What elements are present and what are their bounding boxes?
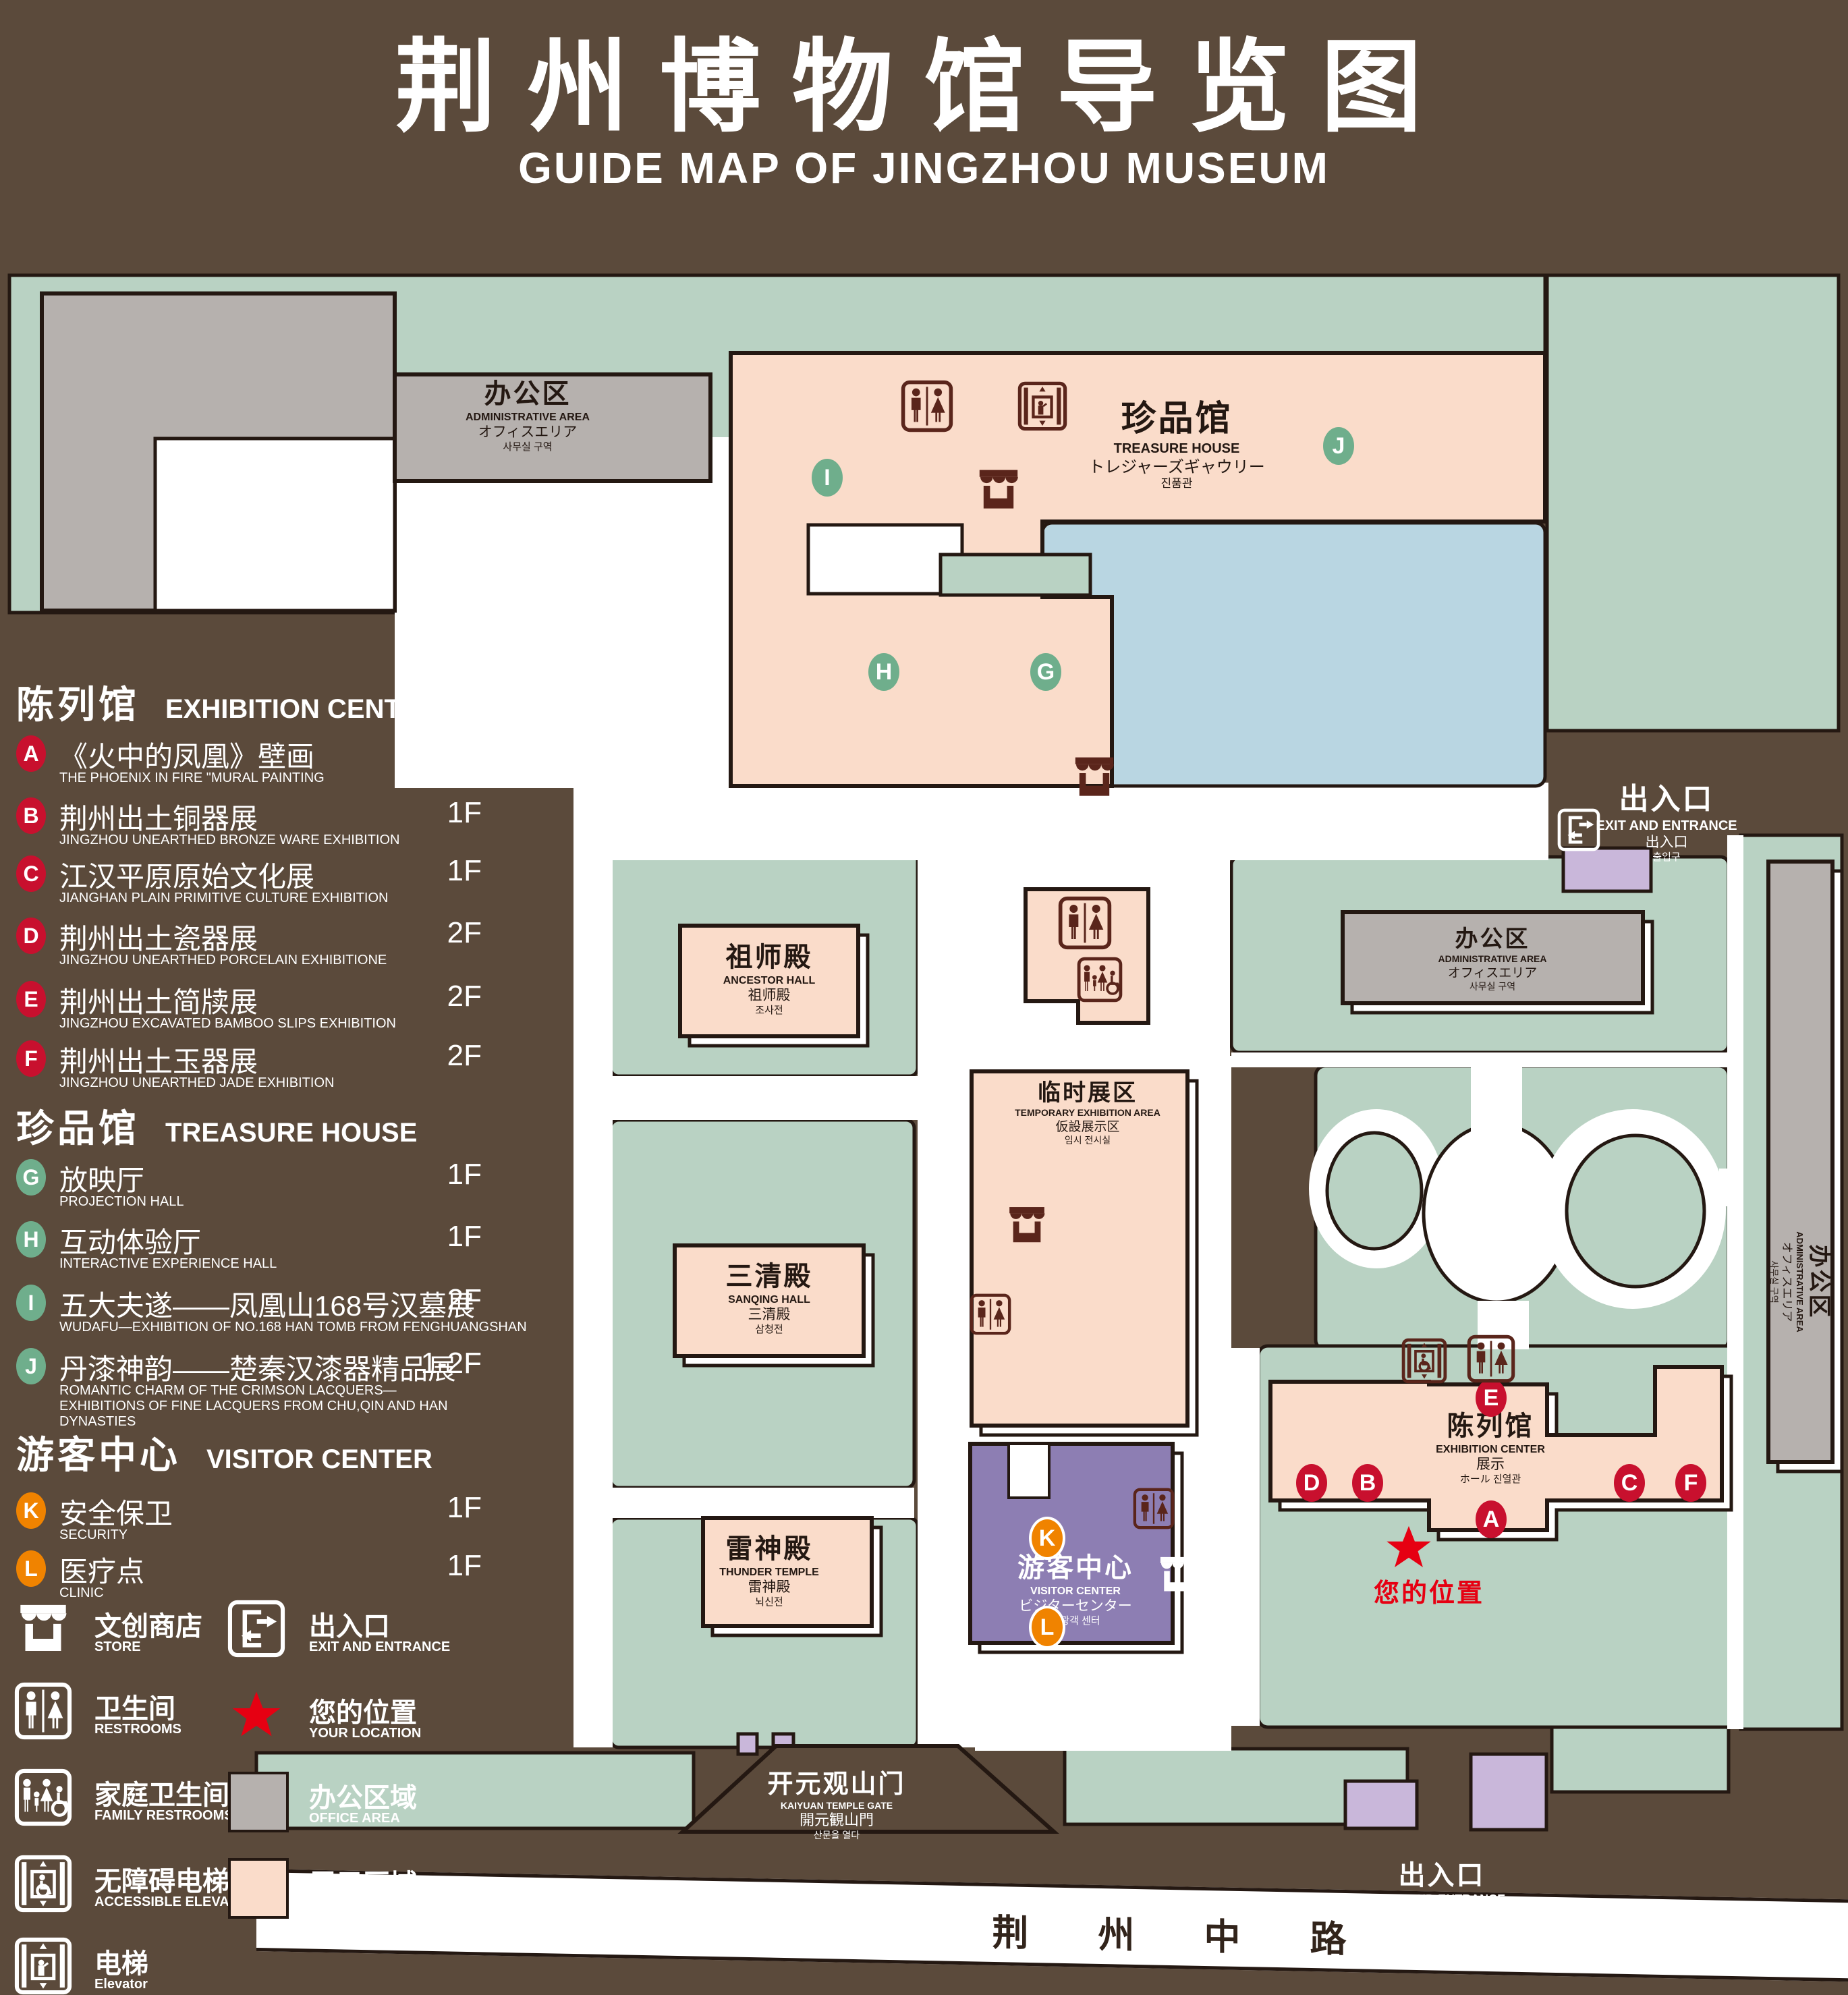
path-right-column	[1727, 835, 1743, 1729]
store-icon	[1156, 1553, 1199, 1596]
temporary-exhibition-label: 临时展区TEMPORARY EXHIBITION AREA 仮設展示区임시 전시…	[1015, 1079, 1160, 1146]
restroom-icon	[901, 380, 953, 432]
exit-icon	[227, 1600, 285, 1658]
store-icon	[974, 466, 1023, 514]
visitor-center-notch	[1009, 1444, 1049, 1498]
legend-item-H: H 互动体验厅 INTERACTIVE EXPERIENCE HALL 1F	[16, 1220, 486, 1283]
restroom-icon	[1133, 1488, 1175, 1529]
ancestor-hall-label: 祖师殿ANCESTOR HALL 祖师殿조사전	[723, 941, 816, 1017]
map-marker-C: C	[1614, 1464, 1645, 1502]
legend-section-treasure-house: 珍品馆TREASURE HOUSE	[16, 1098, 417, 1153]
map-marker-L: L	[1029, 1606, 1065, 1649]
pond-island	[941, 555, 1090, 595]
exit-bottom-label: 出入口EXIT AND ENTRANCE 出入口출입구	[1378, 1859, 1505, 1937]
map-marker-I: I	[812, 459, 843, 497]
path-center-vertical	[918, 840, 975, 1747]
elevator-icon	[1017, 381, 1067, 431]
legend-item-F: F 荆州出土玉器展 JINGZHOU UNEARTHED JADE EXHIBI…	[16, 1039, 486, 1102]
map-marker-A: A	[1476, 1500, 1507, 1538]
garden-green-right	[1567, 1135, 1704, 1287]
garden-path-top	[1471, 1066, 1522, 1160]
lawn-top-right	[1547, 275, 1839, 731]
admin-west-courtyard	[155, 439, 395, 611]
garden-green-left	[1327, 1133, 1422, 1249]
legend-item-K: K 安全保卫 SECURITY 1F	[16, 1491, 486, 1554]
road-label: 荆 州 中 路	[982, 1903, 1387, 1964]
map-marker-F: F	[1675, 1464, 1706, 1502]
restroom-icon	[14, 1682, 72, 1740]
exit-top-label: 出入口EXIT AND ENTRANCE 出入口출입구	[1596, 781, 1737, 864]
gate-post-left	[738, 1734, 757, 1754]
admin-mid-label: 办公区ADMINISTRATIVE AREA オフィスエリア사무실 구역	[1438, 926, 1547, 992]
map-marker-G: G	[1030, 653, 1061, 691]
path-mid-horizontal	[573, 783, 1548, 860]
legend-item-G: G 放映厅 PROJECTION HALL 1F	[16, 1158, 486, 1221]
legend-section-visitor-center: 游客中心VISITOR CENTER	[16, 1425, 432, 1480]
restroom-icon	[1058, 896, 1112, 950]
elevator-icon	[14, 1937, 72, 1995]
legend-item-B: B 荆州出土铜器展 JINGZHOU UNEARTHED BRONZE WARE…	[16, 796, 486, 860]
admin-west-label: 办公区ADMINISTRATIVE AREA オフィスエリア사무실 구역	[466, 378, 590, 453]
legend-item-A: A 《火中的凤凰》壁画 THE PHOENIX IN FIRE "MURAL P…	[16, 734, 486, 797]
map-marker-D: D	[1296, 1464, 1327, 1502]
map-marker-E: E	[1476, 1379, 1507, 1417]
path-midrow-gap	[1231, 1052, 1729, 1067]
restroom-icon	[970, 1293, 1011, 1335]
store-icon	[14, 1600, 72, 1658]
family-restroom-icon	[14, 1768, 72, 1826]
map-marker-J: J	[1323, 427, 1354, 465]
path-pads-gap2	[611, 1488, 914, 1518]
path-pads-gap1	[611, 1076, 918, 1120]
admin-east-bar-label: 办公区ADMINISTRATIVE AREA オフィスエリア사무실 구역	[1768, 1231, 1832, 1332]
accessible-elevator-icon	[1401, 1338, 1447, 1384]
map-marker-B: B	[1352, 1464, 1383, 1502]
family-restroom-icon	[1077, 957, 1123, 1003]
display-area-swatch	[228, 1858, 289, 1919]
legend-item-I: I 五大夫遂——凤凰山168号汉墓展 WUDAFU—EXHIBITION OF …	[16, 1283, 486, 1347]
pond	[1042, 523, 1545, 786]
exhibition-center-label: 陈列馆EXHIBITION CENTER 展示ホール 진열관	[1436, 1410, 1545, 1486]
treasure-house-label: 珍品馆TREASURE HOUSE トレジャーズギャウリー진품관	[1088, 398, 1265, 491]
restroom-icon	[1467, 1334, 1515, 1383]
legend-item-C: C 江汉平原原始文化展 JIANGHAN PLAIN PRIMITIVE CUL…	[16, 854, 486, 918]
booth-bottom-exit-a	[1345, 1781, 1417, 1828]
legend-section-exhibition-center: 陈列馆EXHIBITION CENTER	[16, 675, 438, 729]
path-west-vertical	[573, 783, 613, 1747]
kaiyuan-gate-label: 开元观山门KAIYUAN TEMPLE GATE 開元観山門산문을 열다	[767, 1769, 905, 1841]
thunder-temple-label: 雷神殿THUNDER TEMPLE 雷神殿뇌신전	[719, 1533, 819, 1608]
guide-map-page: { "title": {"zh": "荆州博物馆导览图", "en": "GUI…	[0, 0, 1848, 1975]
lawn-exit-right	[1552, 1727, 1729, 1792]
map-marker-H: H	[868, 653, 899, 691]
path-frame-west	[1230, 1348, 1260, 1726]
your-location-star-icon	[1384, 1523, 1434, 1573]
admin-building-east-bar	[1768, 862, 1832, 1462]
booth-bottom-exit-b	[1471, 1754, 1546, 1830]
exit-icon	[1557, 808, 1600, 851]
your-location-text: 您的位置	[1374, 1572, 1484, 1609]
sanqing-hall-label: 三清殿SANQING HALL 三清殿삼청전	[726, 1260, 813, 1336]
office-area-swatch	[228, 1772, 289, 1832]
garden-path-east	[1719, 1169, 1742, 1206]
store-icon	[1070, 753, 1119, 802]
your-location-star-icon	[229, 1688, 283, 1742]
legend-item-E: E 荆州出土简牍展 JINGZHOU EXCAVATED BAMBOO SLIP…	[16, 980, 486, 1043]
store-icon	[1005, 1203, 1049, 1247]
accessible-elevator-icon	[14, 1855, 72, 1913]
map-marker-K: K	[1029, 1517, 1065, 1560]
legend-item-D: D 荆州出土瓷器展 JINGZHOU UNEARTHED PORCELAIN E…	[16, 916, 486, 980]
